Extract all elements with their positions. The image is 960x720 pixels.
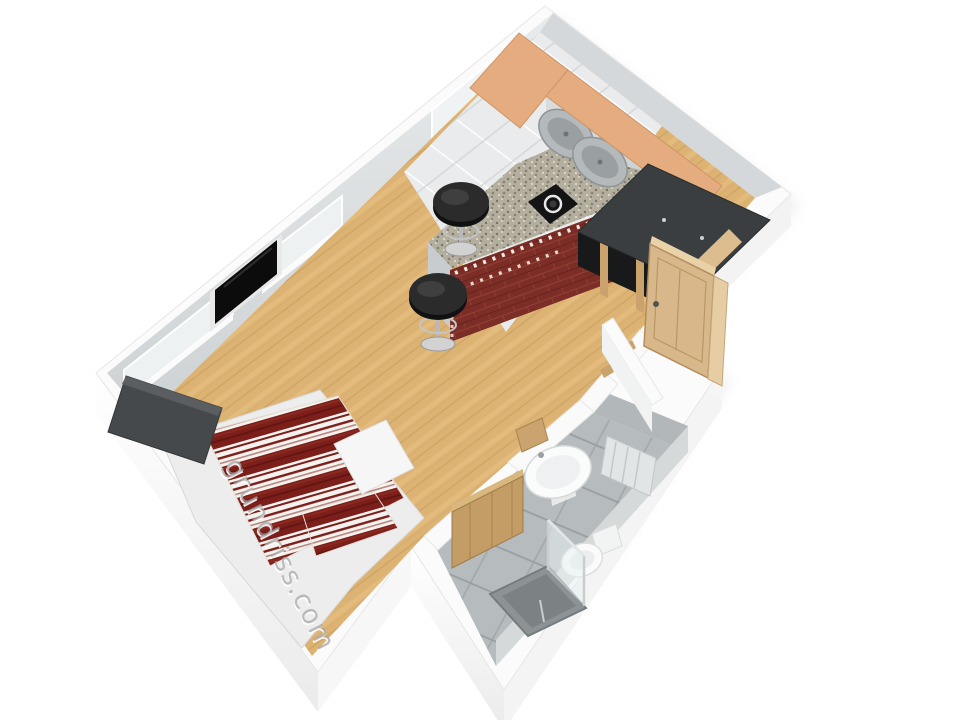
floorplan-render: grundriss.com grundriss.com bbox=[0, 0, 960, 720]
floorplan-svg: grundriss.com grundriss.com bbox=[0, 0, 960, 720]
door-handle bbox=[653, 301, 659, 307]
wardrobe-post-1 bbox=[600, 242, 608, 298]
wardrobe-post-2 bbox=[636, 259, 644, 313]
